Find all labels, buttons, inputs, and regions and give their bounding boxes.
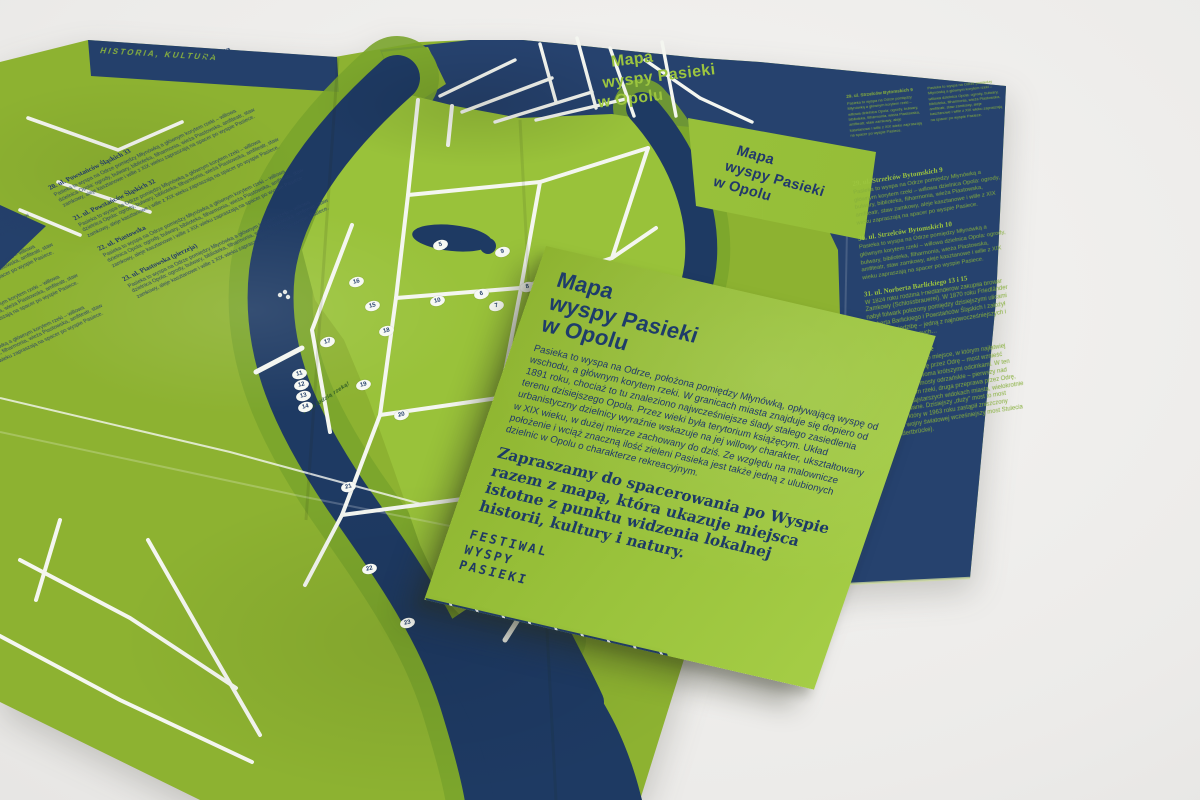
micro-text: Pasieka to wyspa na Odrze pomiędzy Młynó… <box>927 79 1002 122</box>
castle-pond <box>480 238 496 254</box>
micro-text: Pasieka to wyspa na Odrze pomiędzy Młynó… <box>847 94 922 137</box>
back-panel-paragraph: Pasieka to wyspa na Odrze pomiędzy Młynó… <box>927 78 1003 122</box>
photo-stage: HISTORIA, KULTURA Natura Mapa wyspy Pasi… <box>0 0 1200 800</box>
back-panel-paragraph: 29. ul. Strzelców Bytomskich 9Pasieka to… <box>846 86 923 137</box>
